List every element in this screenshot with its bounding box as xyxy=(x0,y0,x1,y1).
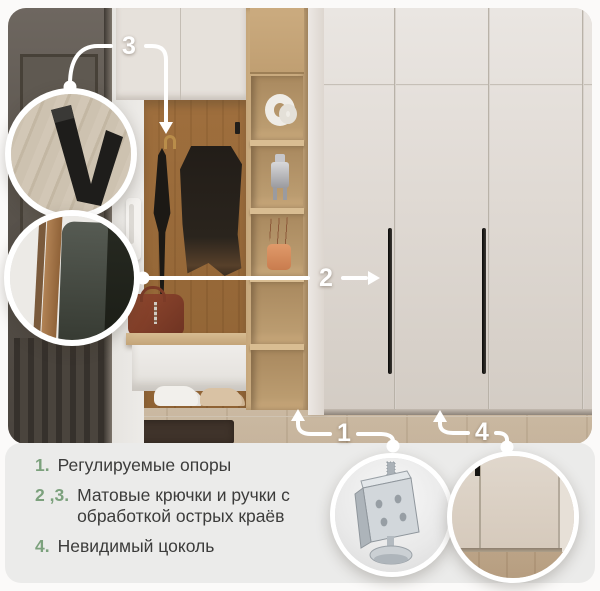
legend-item-supports: 1. Регулируемые опоры xyxy=(35,455,385,476)
black-hook-icon xyxy=(11,94,131,214)
open-shelf-column xyxy=(246,8,308,410)
coat-hook xyxy=(235,122,240,134)
legend-text: Невидимый цоколь xyxy=(58,536,215,557)
wardrobe-handle xyxy=(388,228,392,374)
shelf-top-door xyxy=(250,8,304,74)
reed-diffuser xyxy=(267,244,291,270)
adjustable-foot-icon xyxy=(335,458,449,572)
figurine xyxy=(271,162,289,188)
callout-label-2: 2 xyxy=(311,265,341,291)
legend-num: 1. xyxy=(35,455,50,476)
umbrella-hook xyxy=(164,135,176,149)
wardrobe-door-seam xyxy=(582,8,584,415)
shelf-cubby xyxy=(251,76,303,140)
handle-tip xyxy=(475,456,480,476)
shelf-cubby xyxy=(251,146,303,208)
figurine-legs xyxy=(273,188,287,200)
bag-chain xyxy=(154,302,157,324)
hook-detail-photo xyxy=(5,88,137,220)
floor-planks xyxy=(452,552,574,578)
legend-num: 2 ,3. xyxy=(35,485,69,527)
bench-seat xyxy=(126,333,256,345)
handle-edge-detail-photo xyxy=(4,210,140,346)
bag-handle xyxy=(140,286,166,302)
legend-num: 4. xyxy=(35,536,50,557)
fur-coat xyxy=(180,146,242,276)
wardrobe-door-seam xyxy=(488,8,490,415)
wardrobe-filler-stile xyxy=(308,8,324,415)
plinth-detail-photo xyxy=(447,451,579,583)
bench-drawer xyxy=(132,345,252,391)
cabinet-seam xyxy=(180,8,181,100)
callout-label-4: 4 xyxy=(467,419,497,445)
shelf-cubby-empty xyxy=(251,350,303,410)
wardrobe-door-seam xyxy=(394,8,396,415)
side-panel xyxy=(560,456,574,554)
ring-sculpture-small xyxy=(279,104,297,124)
floor-plank-line xyxy=(108,416,592,417)
diffuser-sticks xyxy=(268,217,291,247)
adjustable-foot-detail-photo xyxy=(330,453,454,577)
product-infographic: 1. Регулируемые опоры 2 ,3. Матовые крюч… xyxy=(0,0,600,591)
callout-label-3: 3 xyxy=(114,33,144,59)
legend-text: Регулируемые опоры xyxy=(58,455,232,476)
wardrobe xyxy=(324,8,592,415)
door-lower-slats xyxy=(14,338,108,444)
wardrobe-horizontal-seam xyxy=(324,84,592,86)
callout-label-1: 1 xyxy=(329,420,359,446)
shelf-cubby xyxy=(251,214,303,276)
beige-heels xyxy=(200,388,242,406)
wardrobe-base-shadow xyxy=(324,409,592,415)
wardrobe-handle xyxy=(482,228,486,374)
white-sneakers xyxy=(154,386,198,406)
shelf-cubby-empty xyxy=(251,282,303,344)
handle-profile-front xyxy=(58,221,109,346)
legend-item-plinth: 4. Невидимый цоколь xyxy=(35,536,385,557)
